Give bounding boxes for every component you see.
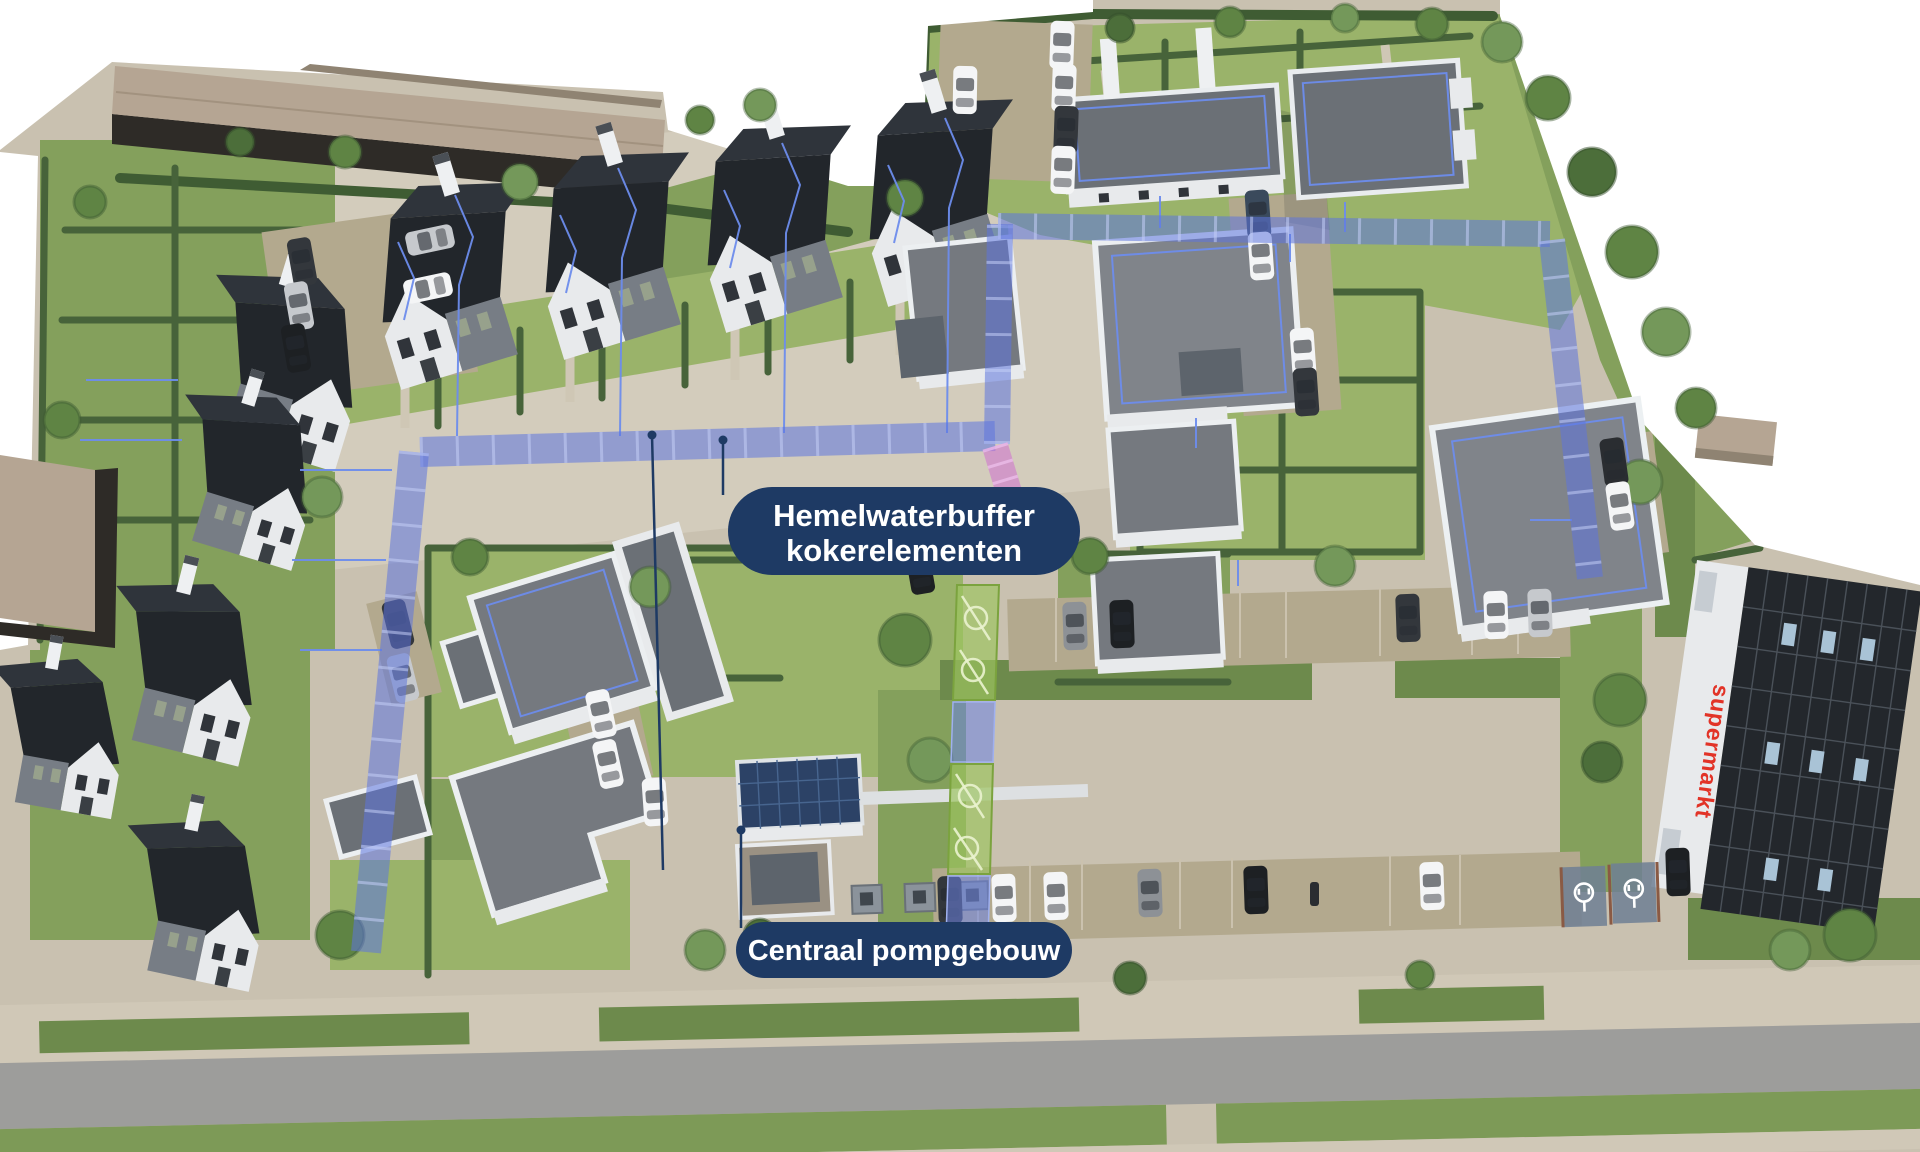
aerial-render-canvas: supermarkt — [0, 0, 1920, 1152]
villa-small — [1108, 421, 1242, 548]
car — [1665, 848, 1691, 897]
culvert-green-segment — [953, 585, 999, 700]
motorcycle — [1310, 882, 1319, 906]
car — [1050, 146, 1076, 195]
leader-dot — [648, 431, 657, 440]
car — [1243, 866, 1269, 915]
buffer-pipe-west — [420, 436, 995, 452]
pump-annex — [737, 841, 833, 918]
car — [1109, 600, 1135, 649]
car — [1527, 589, 1553, 638]
garden-shed — [1179, 348, 1244, 396]
car — [953, 66, 978, 114]
car — [1051, 64, 1077, 113]
car — [1292, 367, 1319, 417]
car — [1395, 594, 1421, 643]
apartment-slab-b — [1290, 59, 1478, 197]
shed — [895, 316, 949, 379]
car — [641, 777, 668, 827]
car — [1419, 862, 1445, 911]
leader-dot — [719, 436, 728, 445]
car — [1062, 602, 1088, 651]
car — [1049, 21, 1075, 70]
car — [1137, 869, 1163, 918]
leader-dot — [737, 826, 746, 835]
pump-label: Centraal pompgebouw — [736, 922, 1072, 978]
car — [1483, 591, 1509, 640]
ev-parking-spots — [1561, 862, 1659, 927]
site-plan-render: supermarkt — [0, 0, 1920, 1152]
buffer-label: Hemelwaterbuffer kokerelementen — [728, 487, 1080, 575]
buffer-label-line2: kokerelementen — [786, 533, 1022, 568]
car — [991, 874, 1017, 923]
buffer-label-line1: Hemelwaterbuffer — [773, 498, 1035, 533]
culvert-blue-segment — [951, 702, 995, 762]
car — [1043, 872, 1069, 921]
pump-label-text: Centraal pompgebouw — [748, 935, 1061, 967]
